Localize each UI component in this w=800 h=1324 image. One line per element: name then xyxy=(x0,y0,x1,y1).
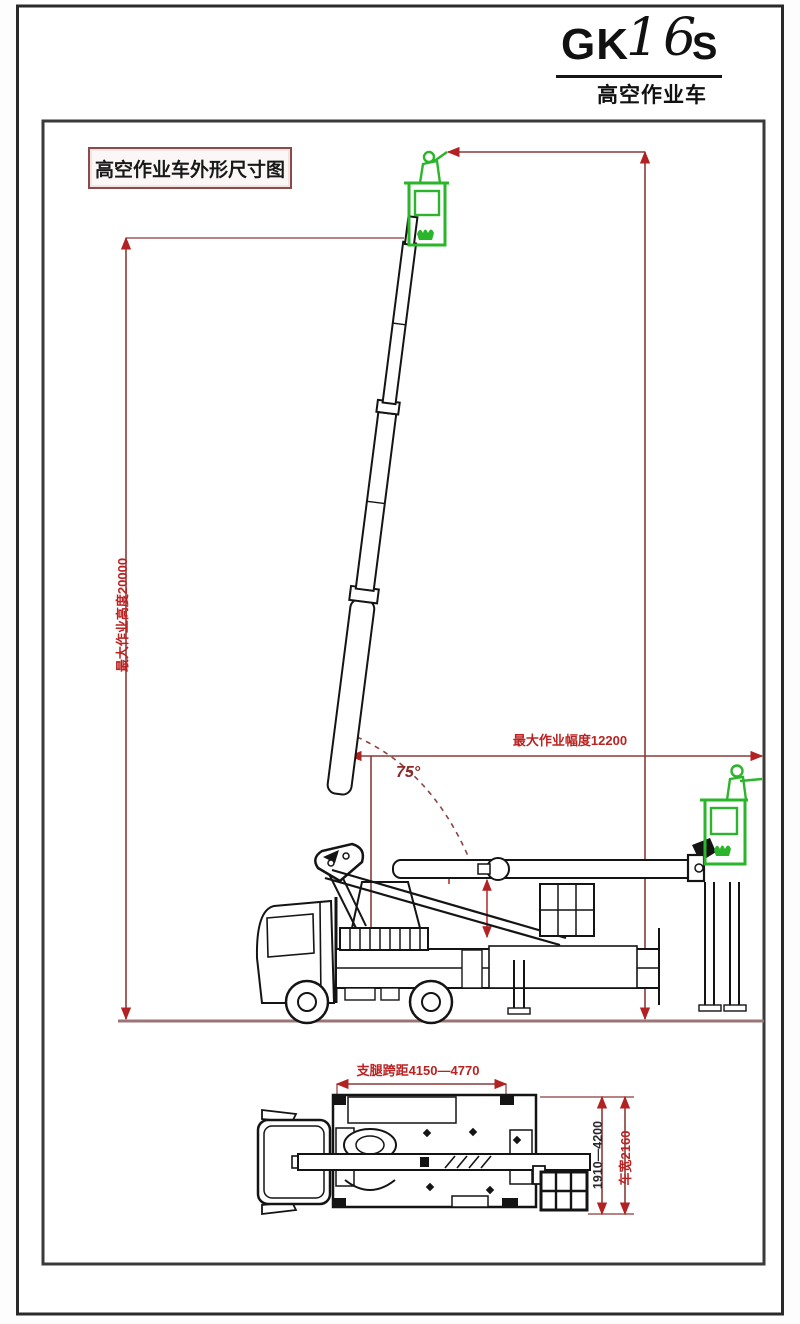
front-wheel-hub xyxy=(298,993,316,1011)
stowed-boom-tube xyxy=(393,860,703,878)
deck-post xyxy=(462,950,482,988)
fuel-tank xyxy=(345,988,375,1000)
outrigger-width-dimension: 1910—4200 xyxy=(591,1094,605,1216)
rear-wheel-hub xyxy=(422,993,440,1011)
rear-outrigger-pad-1 xyxy=(699,1005,721,1011)
boom-plan-bar xyxy=(298,1154,590,1170)
basket-logo xyxy=(714,846,731,857)
boom-angle-dimension: 75° xyxy=(396,764,420,782)
rear-outrigger-pad-2 xyxy=(724,1005,746,1011)
body-inner-box xyxy=(348,1097,456,1123)
drawing-title-box: 高空作业车外形尺寸图 xyxy=(88,147,292,189)
outrigger-block-bl xyxy=(334,1198,346,1207)
outrigger-slot-3 xyxy=(510,1130,532,1154)
model-code-number: 16 xyxy=(626,8,700,68)
knee-pin-1 xyxy=(328,860,334,866)
mid-outrigger-pad xyxy=(508,1008,530,1014)
boom-flange-mount xyxy=(478,864,490,874)
vehicle-type-subtitle: 高空作业车 xyxy=(597,79,707,109)
vehicle-width-dimension: 车宽2160 xyxy=(615,1097,629,1219)
outrigger-block-tl xyxy=(334,1096,346,1105)
knee-pin-2 xyxy=(343,853,349,859)
basket-pivot-pin xyxy=(695,864,703,872)
max-working-radius-dimension: 最大作业幅度12200 xyxy=(460,730,680,749)
drawing-title-label: 高空作业车外形尺寸图 xyxy=(95,155,285,182)
boom-plan-mark xyxy=(420,1157,429,1167)
outrigger-block-br xyxy=(502,1198,518,1207)
max-working-height-dimension: 最大作业高度20000 xyxy=(112,515,128,715)
body-notch xyxy=(452,1196,488,1207)
outrigger-block-tr xyxy=(500,1096,514,1105)
outrigger-span-dimension: 支腿跨距4150—4770 xyxy=(328,1060,508,1079)
title-underline xyxy=(556,75,722,78)
turret-pedestal xyxy=(340,928,428,950)
basket-logo xyxy=(417,230,434,241)
model-code-prefix: GK xyxy=(561,20,629,70)
turntable-plan-inner xyxy=(356,1136,384,1154)
drawing-sheet: GK 16 S 高空作业车 高空作业车外形尺寸图 最大作业高度20000 最大作… xyxy=(0,0,800,1324)
cab-window xyxy=(267,914,314,957)
battery-box xyxy=(381,988,399,1000)
deck-box xyxy=(489,946,637,988)
model-code-suffix: S xyxy=(692,26,717,69)
